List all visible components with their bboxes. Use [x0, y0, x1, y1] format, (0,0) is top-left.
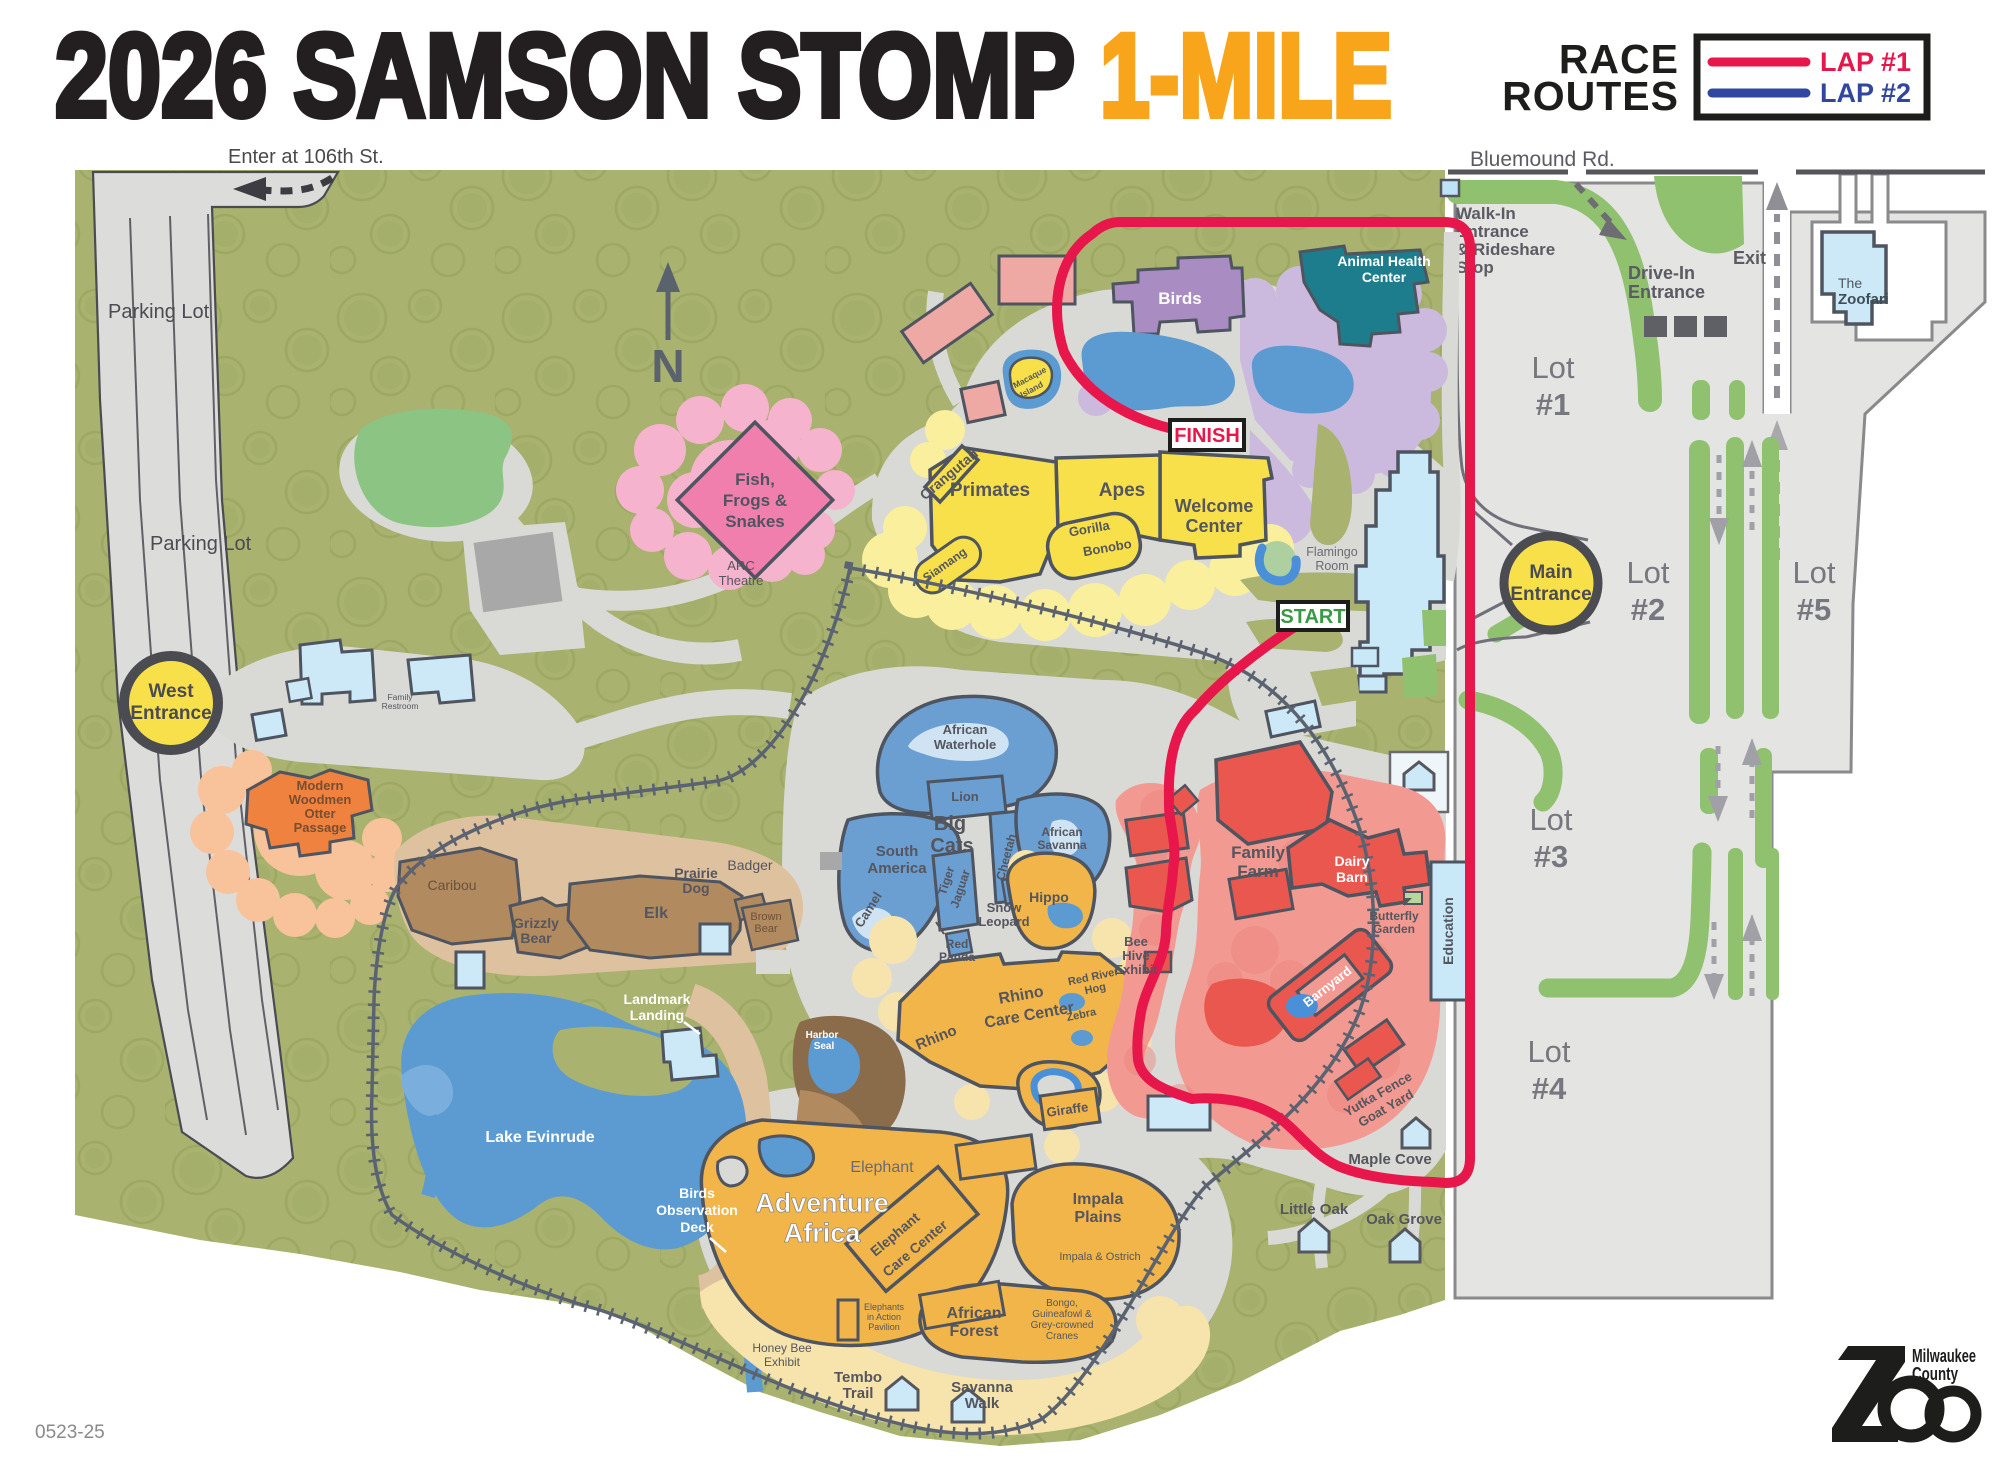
svg-text:Entrance: Entrance: [1628, 282, 1705, 302]
svg-text:Drive-In: Drive-In: [1628, 263, 1695, 283]
svg-text:Butterfly: Butterfly: [1369, 909, 1419, 923]
svg-text:LAP #2: LAP #2: [1820, 78, 1911, 108]
svg-text:1-MILE: 1-MILE: [1100, 10, 1392, 142]
svg-text:Impala & Ostrich: Impala & Ostrich: [1059, 1251, 1140, 1263]
svg-text:Zoofari: Zoofari: [1838, 291, 1889, 308]
svg-text:Exhibit: Exhibit: [1114, 962, 1158, 977]
svg-text:Maple Cove: Maple Cove: [1348, 1151, 1431, 1168]
svg-text:Welcome: Welcome: [1175, 496, 1254, 516]
svg-text:Brown: Brown: [750, 911, 781, 923]
svg-text:Africa: Africa: [784, 1218, 862, 1248]
svg-text:Dairy: Dairy: [1334, 853, 1369, 869]
svg-text:Modern: Modern: [297, 778, 344, 793]
svg-text:Impala: Impala: [1073, 1191, 1124, 1208]
svg-text:Adventure: Adventure: [755, 1188, 889, 1218]
svg-text:Prairie: Prairie: [674, 865, 718, 881]
svg-text:Family: Family: [1231, 843, 1285, 862]
svg-text:Observation: Observation: [656, 1202, 738, 1218]
svg-text:Snakes: Snakes: [725, 512, 785, 531]
svg-text:Room: Room: [1315, 559, 1348, 573]
svg-text:0523-25: 0523-25: [35, 1422, 105, 1443]
svg-text:Lake Evinrude: Lake Evinrude: [485, 1129, 594, 1146]
svg-text:Trail: Trail: [843, 1385, 874, 1402]
svg-text:Bear: Bear: [520, 930, 552, 946]
svg-text:Center: Center: [1185, 516, 1242, 536]
svg-text:Barn: Barn: [1336, 869, 1368, 885]
svg-text:Elk: Elk: [644, 905, 668, 922]
svg-text:Deck: Deck: [680, 1219, 714, 1235]
svg-text:Lion: Lion: [951, 789, 978, 804]
svg-text:Woodmen: Woodmen: [289, 792, 352, 807]
svg-text:Exhibit: Exhibit: [764, 1355, 801, 1369]
svg-text:Milwaukee: Milwaukee: [1912, 1346, 1976, 1366]
svg-text:Lot: Lot: [1527, 1034, 1570, 1069]
svg-text:Entrance: Entrance: [1510, 584, 1591, 605]
svg-text:Animal Health: Animal Health: [1337, 253, 1430, 269]
svg-text:Main: Main: [1529, 562, 1572, 583]
svg-text:Harbor: Harbor: [806, 1030, 839, 1041]
svg-text:#4: #4: [1532, 1071, 1567, 1106]
svg-text:Enter at 106th St.: Enter at 106th St.: [228, 146, 384, 168]
svg-text:African: African: [1041, 825, 1082, 839]
svg-text:Hippo: Hippo: [1029, 889, 1069, 905]
svg-text:Tembo: Tembo: [834, 1369, 882, 1386]
svg-text:Parking Lot: Parking Lot: [150, 533, 252, 555]
svg-text:LAP #1: LAP #1: [1820, 47, 1911, 77]
svg-text:START: START: [1280, 606, 1345, 628]
svg-text:Bear: Bear: [754, 923, 778, 935]
svg-text:Lot: Lot: [1626, 555, 1669, 590]
svg-text:Lot: Lot: [1529, 802, 1572, 837]
svg-text:Grey-crowned: Grey-crowned: [1031, 1320, 1094, 1331]
svg-text:Restroom: Restroom: [382, 701, 419, 711]
svg-text:African: African: [946, 1305, 1001, 1322]
svg-text:Frogs &: Frogs &: [723, 491, 787, 510]
svg-text:Birds: Birds: [1158, 289, 1201, 308]
svg-text:County: County: [1912, 1364, 1958, 1384]
svg-text:Fish,: Fish,: [735, 470, 775, 489]
svg-text:Walk-In: Walk-In: [1456, 204, 1516, 223]
svg-text:Caribou: Caribou: [427, 877, 476, 893]
svg-text:Otter: Otter: [304, 806, 335, 821]
svg-text:Cats: Cats: [930, 835, 973, 857]
svg-text:ARC: ARC: [727, 558, 754, 573]
svg-text:Theatre: Theatre: [719, 573, 764, 588]
svg-text:Dog: Dog: [682, 880, 709, 896]
svg-text:Parking Lot: Parking Lot: [108, 301, 210, 323]
svg-text:African: African: [943, 722, 988, 737]
svg-text:Honey Bee: Honey Bee: [752, 1341, 812, 1355]
svg-text:N: N: [651, 340, 684, 392]
svg-text:Savanna: Savanna: [1037, 838, 1087, 852]
svg-text:Savanna: Savanna: [951, 1379, 1013, 1396]
svg-text:Snow: Snow: [987, 900, 1023, 915]
svg-text:Birds: Birds: [679, 1185, 715, 1201]
svg-text:#1: #1: [1536, 387, 1570, 422]
svg-text:FINISH: FINISH: [1174, 425, 1240, 447]
svg-text:ROUTES: ROUTES: [1502, 73, 1679, 119]
svg-text:Panda: Panda: [939, 950, 975, 964]
svg-text:#5: #5: [1797, 592, 1831, 627]
svg-text:Flamingo: Flamingo: [1306, 545, 1357, 559]
svg-text:Lot: Lot: [1531, 350, 1574, 385]
svg-text:America: America: [867, 860, 927, 877]
svg-text:Big: Big: [934, 813, 966, 835]
svg-text:Forest: Forest: [950, 1323, 1000, 1340]
svg-text:Bongo,: Bongo,: [1046, 1298, 1078, 1309]
svg-text:Exit: Exit: [1733, 248, 1766, 268]
svg-text:Education: Education: [1440, 897, 1456, 965]
svg-text:Farm: Farm: [1237, 862, 1279, 881]
svg-text:Pavilion: Pavilion: [868, 1322, 900, 1332]
svg-text:Lot: Lot: [1792, 555, 1835, 590]
svg-text:Plains: Plains: [1074, 1209, 1121, 1226]
svg-text:The: The: [1838, 275, 1862, 291]
svg-text:Primates: Primates: [950, 480, 1030, 501]
svg-text:Elephants: Elephants: [864, 1302, 905, 1312]
svg-text:in Action: in Action: [867, 1312, 901, 1322]
svg-text:Bluemound Rd.: Bluemound Rd.: [1470, 148, 1615, 171]
svg-text:Landmark: Landmark: [624, 991, 691, 1007]
svg-text:West: West: [148, 681, 194, 702]
svg-text:Seal: Seal: [814, 1041, 835, 1052]
svg-text:Elephant: Elephant: [850, 1159, 914, 1176]
svg-text:Entrance: Entrance: [130, 703, 211, 724]
svg-text:South: South: [876, 843, 919, 860]
svg-text:Grizzly: Grizzly: [513, 915, 559, 931]
svg-text:Leopard: Leopard: [978, 914, 1029, 929]
svg-text:Badger: Badger: [727, 857, 772, 873]
svg-text:Oak Grove: Oak Grove: [1366, 1211, 1442, 1228]
svg-text:Walk: Walk: [965, 1395, 1000, 1412]
svg-text:#2: #2: [1631, 592, 1665, 627]
svg-text:2026 SAMSON STOMP: 2026 SAMSON STOMP: [55, 10, 1075, 142]
svg-text:Hive: Hive: [1122, 948, 1149, 963]
svg-text:Cranes: Cranes: [1046, 1331, 1078, 1342]
svg-text:Little Oak: Little Oak: [1280, 1201, 1349, 1218]
svg-text:Center: Center: [1362, 269, 1407, 285]
svg-text:Apes: Apes: [1099, 480, 1145, 501]
svg-text:Guineafowl &: Guineafowl &: [1032, 1309, 1092, 1320]
svg-text:Landing: Landing: [630, 1007, 684, 1023]
svg-text:Garden: Garden: [1373, 922, 1415, 936]
svg-text:Passage: Passage: [294, 820, 347, 835]
svg-text:Waterhole: Waterhole: [934, 737, 996, 752]
svg-text:Red: Red: [946, 937, 969, 951]
svg-text:Bee: Bee: [1124, 934, 1148, 949]
svg-text:#3: #3: [1534, 839, 1568, 874]
